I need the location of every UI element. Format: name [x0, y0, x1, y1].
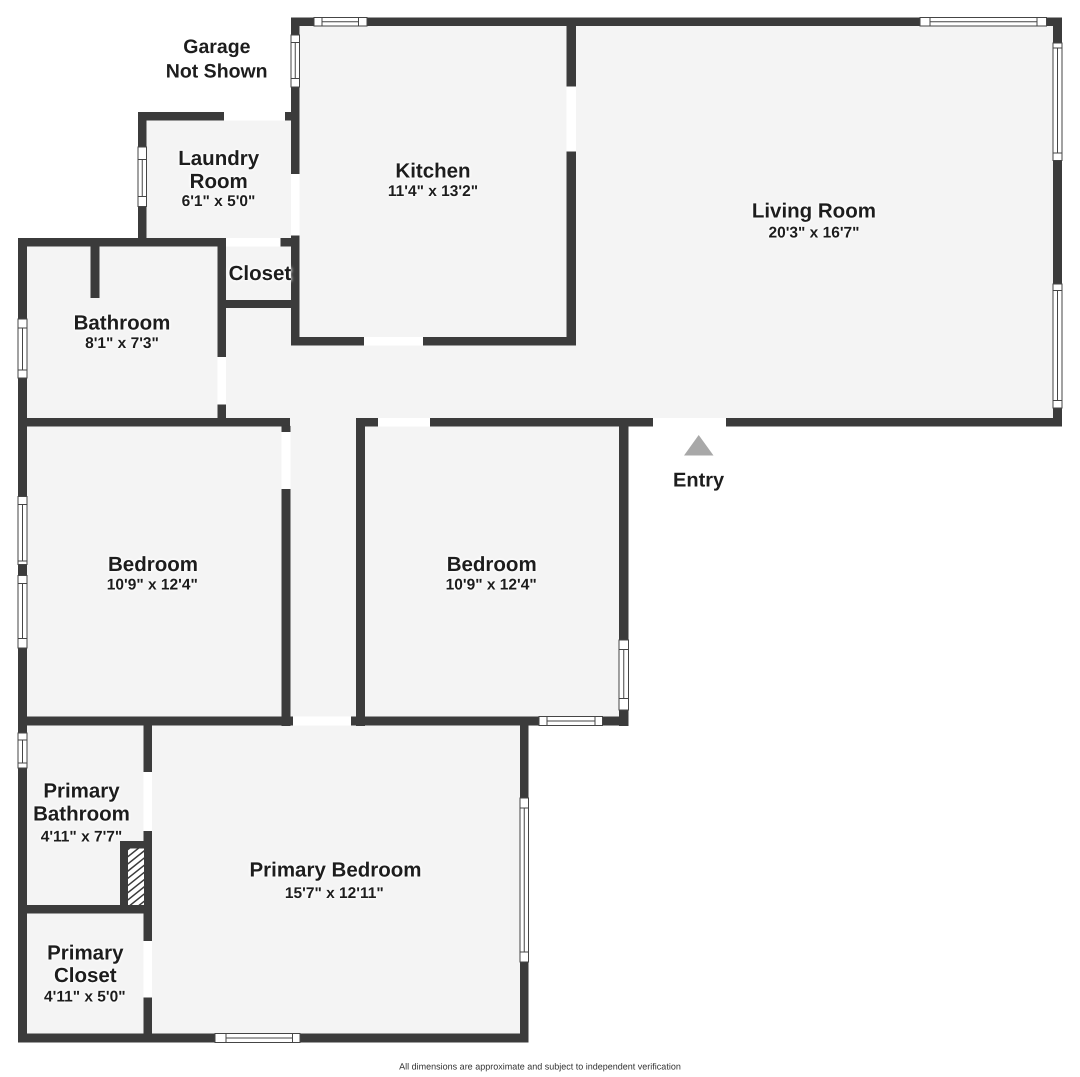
svg-text:Primary: Primary	[47, 942, 124, 965]
svg-text:Bathroom: Bathroom	[74, 312, 171, 335]
svg-text:Kitchen: Kitchen	[395, 159, 470, 182]
svg-text:10'9" x 12'4": 10'9" x 12'4"	[107, 577, 198, 594]
svg-text:Garage: Garage	[183, 36, 250, 58]
svg-text:15'7" x 12'11": 15'7" x 12'11"	[285, 885, 384, 902]
svg-text:20'3" x 16'7": 20'3" x 16'7"	[768, 225, 859, 242]
svg-text:11'4" x 13'2": 11'4" x 13'2"	[388, 183, 478, 200]
svg-text:Bedroom: Bedroom	[108, 553, 198, 576]
svg-text:4'11" x 7'7": 4'11" x 7'7"	[41, 829, 123, 846]
svg-text:Bathroom: Bathroom	[33, 803, 130, 826]
svg-text:4'11" x 5'0": 4'11" x 5'0"	[44, 989, 126, 1006]
svg-text:Bedroom: Bedroom	[447, 553, 537, 576]
svg-text:Closet: Closet	[54, 964, 117, 987]
svg-text:All dimensions are approximate: All dimensions are approximate and subje…	[399, 1062, 681, 1072]
svg-text:6'1" x 5'0": 6'1" x 5'0"	[182, 193, 256, 210]
svg-text:Living Room: Living Room	[752, 200, 876, 223]
svg-text:8'1" x 7'3": 8'1" x 7'3"	[85, 335, 159, 352]
svg-text:Not Shown: Not Shown	[166, 61, 268, 83]
svg-text:Room: Room	[190, 170, 248, 193]
svg-text:Primary: Primary	[43, 780, 120, 803]
svg-text:Closet: Closet	[229, 262, 292, 285]
svg-text:Primary Bedroom: Primary Bedroom	[249, 859, 421, 882]
svg-text:10'9" x 12'4": 10'9" x 12'4"	[446, 577, 537, 594]
svg-text:Entry: Entry	[673, 470, 725, 492]
svg-text:Laundry: Laundry	[178, 147, 259, 170]
